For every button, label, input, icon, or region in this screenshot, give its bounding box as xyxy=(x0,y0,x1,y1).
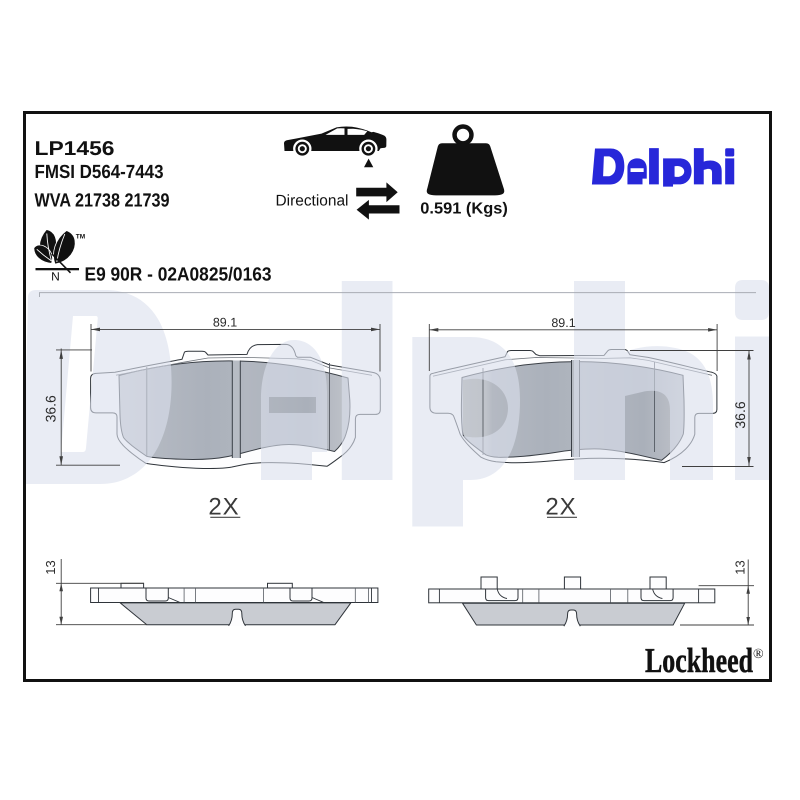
svg-text:TM: TM xyxy=(76,233,85,240)
svg-text:13: 13 xyxy=(43,560,58,574)
svg-text:LP1456: LP1456 xyxy=(35,138,115,160)
svg-text:0.591 (Kgs): 0.591 (Kgs) xyxy=(420,201,508,218)
svg-text:E9 90R - 02A0825/0163: E9 90R - 02A0825/0163 xyxy=(85,265,272,286)
svg-text:36.6: 36.6 xyxy=(732,401,748,428)
svg-text:2X: 2X xyxy=(208,494,239,521)
svg-text:N: N xyxy=(51,269,60,283)
svg-text:®: ® xyxy=(753,647,764,662)
svg-text:Directional: Directional xyxy=(276,193,349,210)
svg-text:Lockheed: Lockheed xyxy=(645,641,753,680)
svg-text:89.1: 89.1 xyxy=(213,316,237,330)
svg-text:WVA 21738 21739: WVA 21738 21739 xyxy=(35,191,170,212)
svg-text:13: 13 xyxy=(733,560,748,574)
svg-text:89.1: 89.1 xyxy=(551,316,575,330)
svg-text:36.6: 36.6 xyxy=(43,395,59,422)
svg-text:FMSI D564-7443: FMSI D564-7443 xyxy=(35,162,164,183)
svg-text:2X: 2X xyxy=(545,494,576,521)
